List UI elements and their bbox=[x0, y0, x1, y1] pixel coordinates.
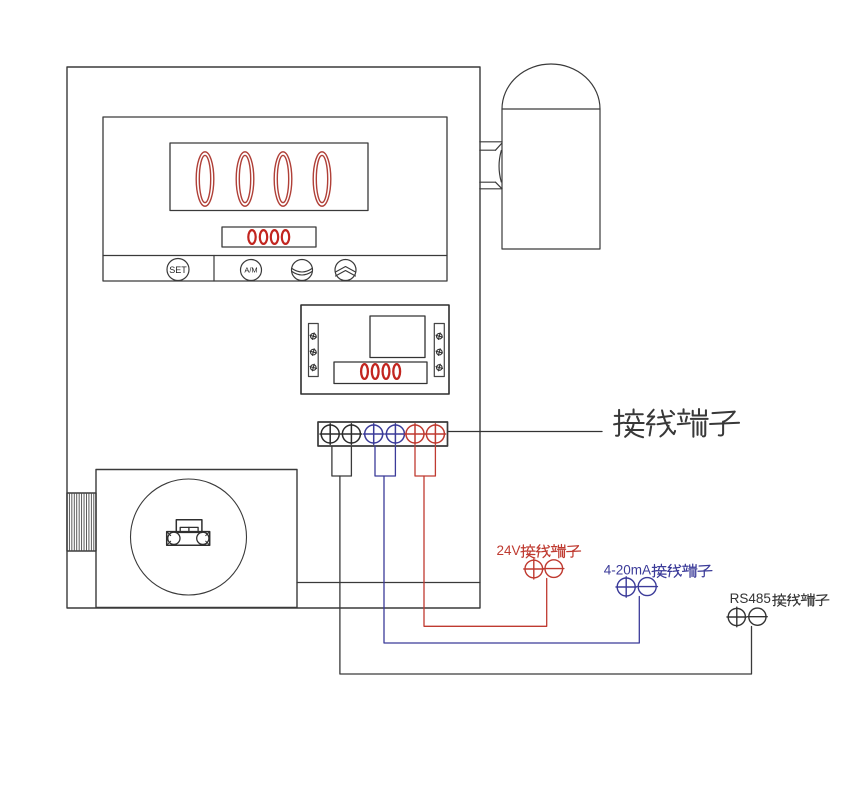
svg-text:A/M: A/M bbox=[244, 266, 257, 275]
svg-text:4-20mA: 4-20mA bbox=[604, 563, 651, 578]
svg-text:24V: 24V bbox=[497, 543, 521, 558]
svg-text:SET: SET bbox=[169, 265, 187, 275]
svg-text:RS485: RS485 bbox=[730, 591, 771, 606]
